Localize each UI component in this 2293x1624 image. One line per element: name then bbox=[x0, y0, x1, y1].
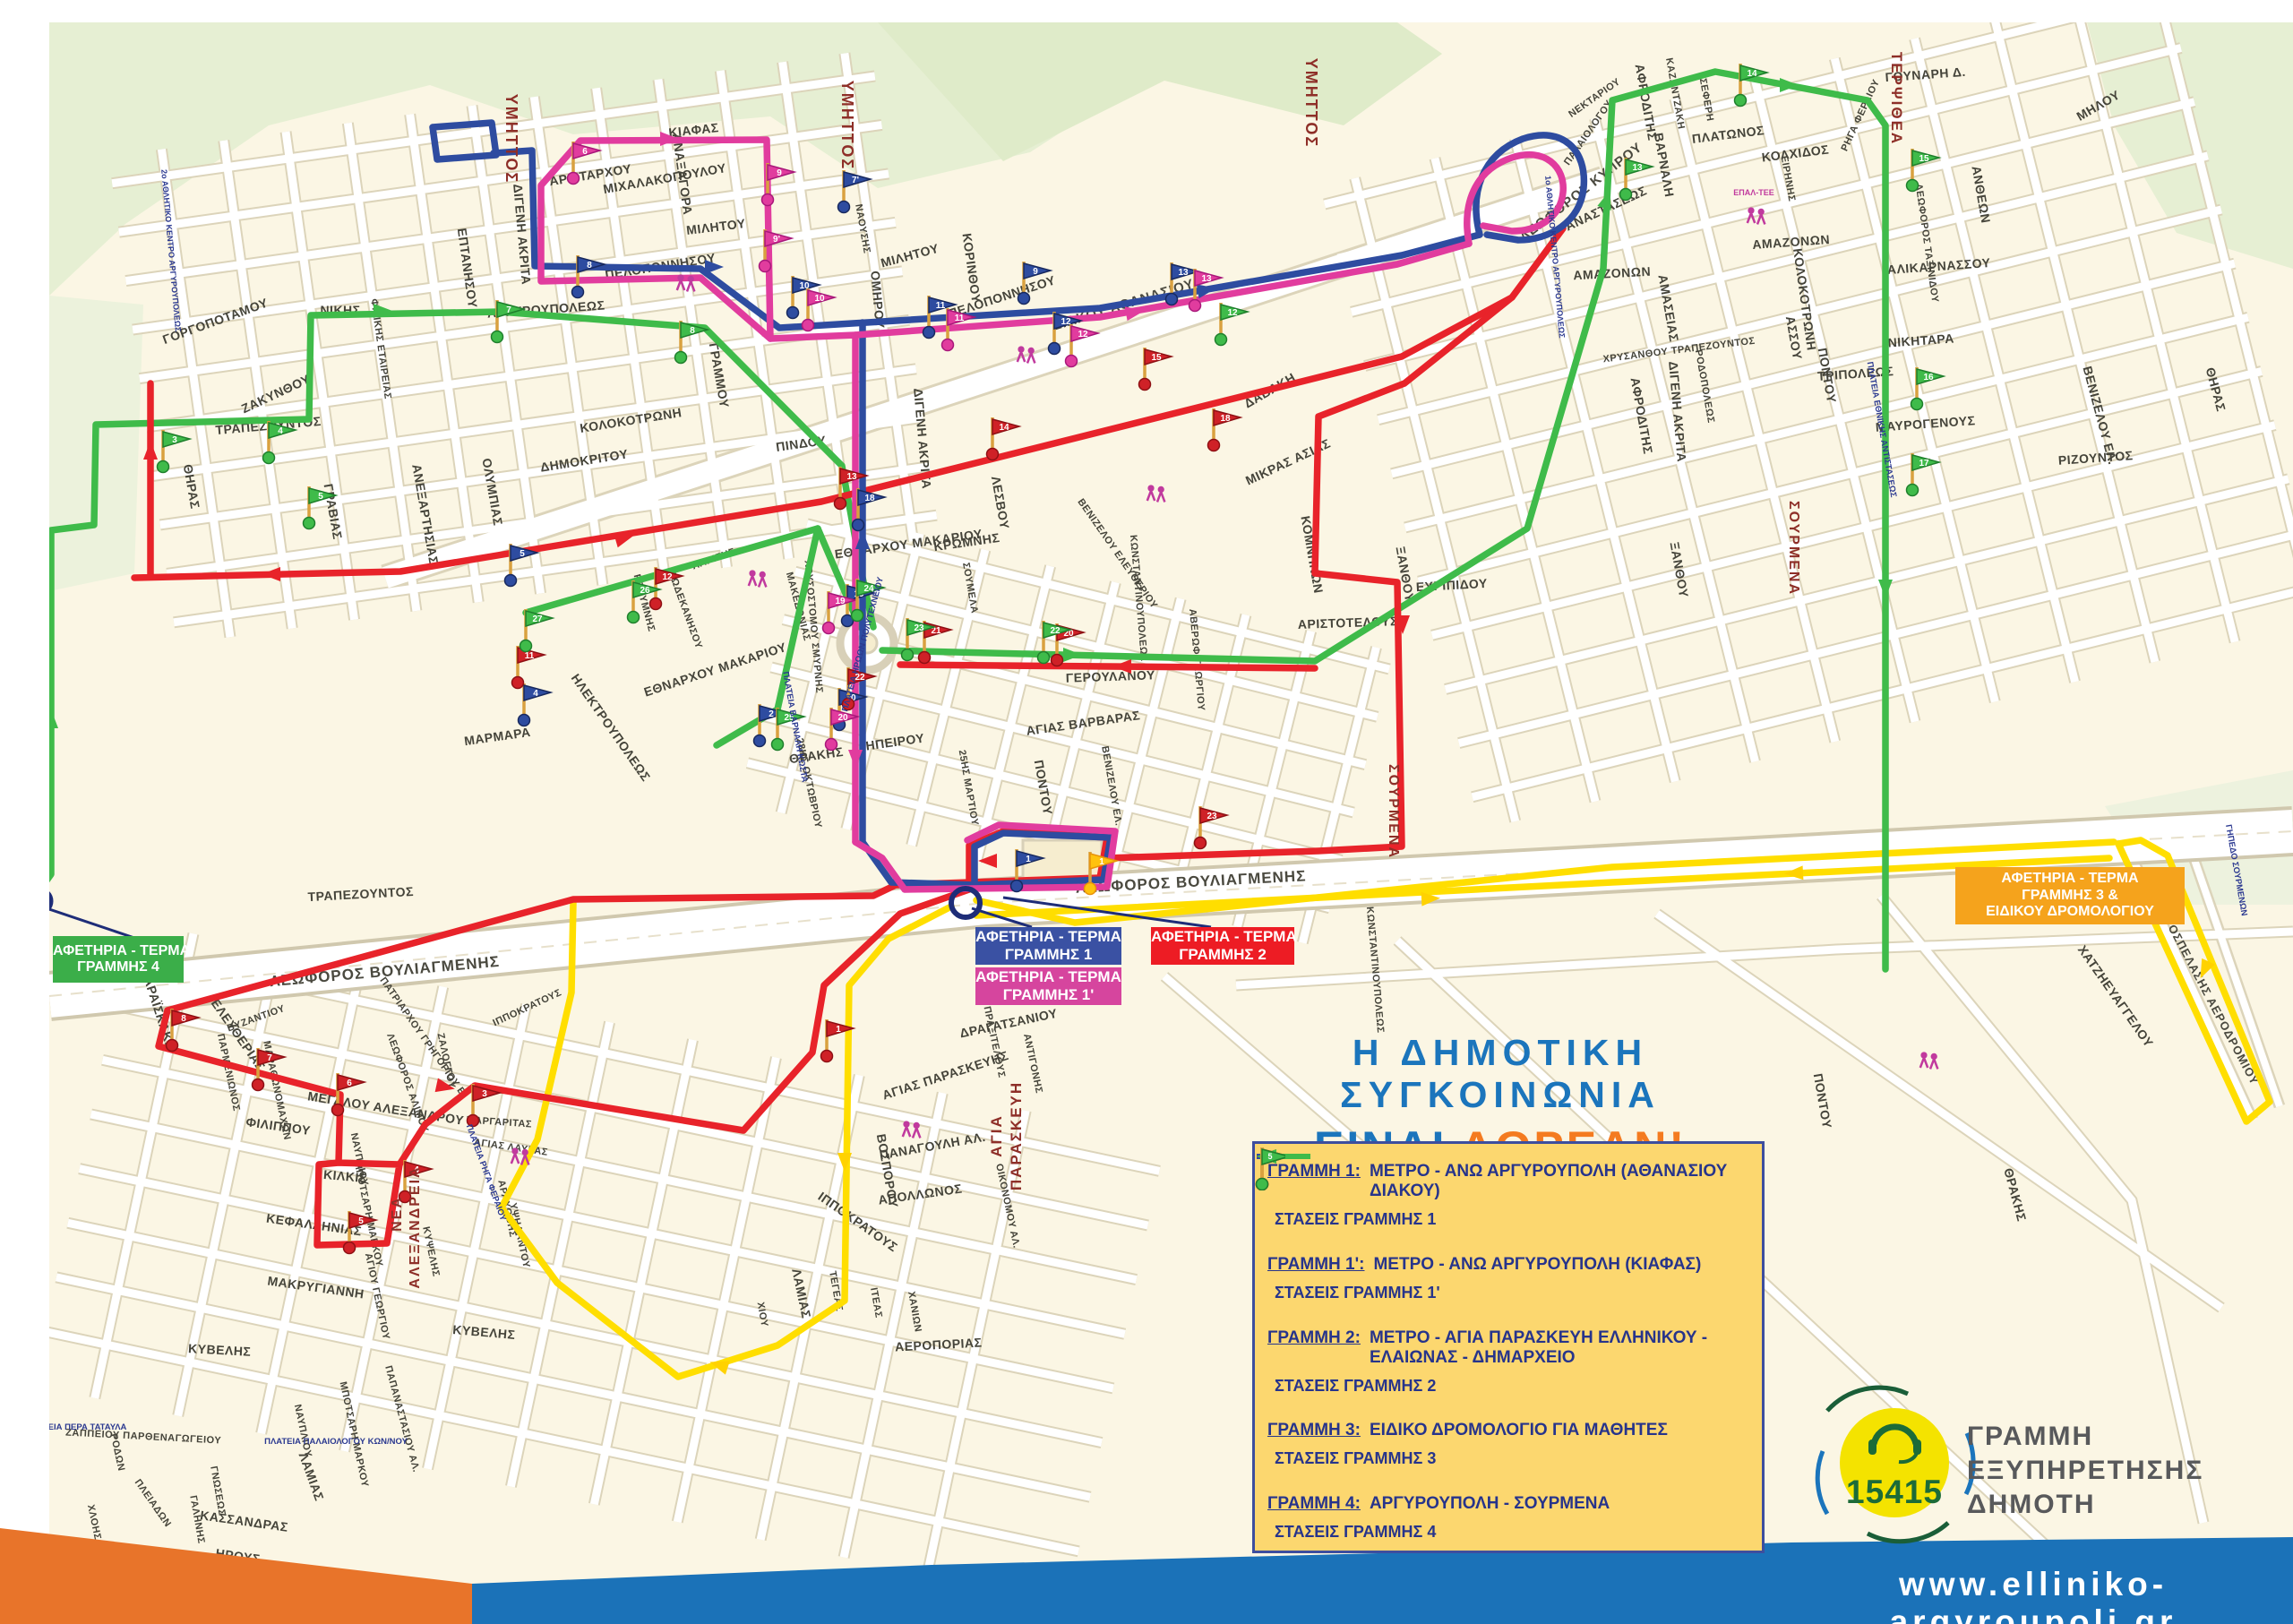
svg-text:5: 5 bbox=[318, 492, 323, 502]
svg-text:19: 19 bbox=[835, 597, 846, 606]
svg-text:26: 26 bbox=[640, 586, 650, 596]
svg-text:8: 8 bbox=[181, 1014, 186, 1024]
terminal-label-line4: ΑΦΕΤΗΡΙΑ - ΤΕΡΜΑ ΓΡΑΜΜΗΣ 4 bbox=[53, 936, 184, 983]
area-label: ΤΕΡΨΙΘΕΑ bbox=[1888, 52, 1905, 145]
svg-text:14: 14 bbox=[1747, 69, 1757, 79]
terminal-text: ΑΦΕΤΗΡΙΑ - ΤΕΡΜΑ bbox=[1955, 871, 2185, 887]
legend-line-desc: ΜΕΤΡΟ - ΑΝΩ ΑΡΓΥΡΟΥΠΟΛΗ (ΑΘΑΝΑΣΙΟΥ ΔΙΑΚΟ… bbox=[1370, 1162, 1746, 1201]
area-label: ΥΜΗΤΤΟΣ bbox=[1302, 58, 1320, 148]
svg-text:4: 4 bbox=[278, 426, 283, 436]
svg-text:9: 9 bbox=[777, 168, 782, 178]
svg-text:23: 23 bbox=[1207, 812, 1217, 821]
svg-text:10: 10 bbox=[814, 294, 825, 304]
legend-line-name: ΓΡΑΜΜΗ 1': bbox=[1267, 1255, 1364, 1275]
terminal-text: ΓΡΑΜΜΗΣ 3 & bbox=[1955, 888, 2185, 904]
city-map: ΜΙΧΑΛΑΚΟΠΟΥΛΟΥ ΠΕΛΟΠΟΝΝΗΣΟΥ ΠΕΛΟΠΟΝΝΗΣΟΥ… bbox=[0, 0, 2293, 1624]
svg-text:12: 12 bbox=[1227, 308, 1238, 318]
legend-stops-label: ΣΤΑΣΕΙΣ ΓΡΑΜΜΗΣ 3 bbox=[1275, 1449, 1436, 1468]
svg-text:27: 27 bbox=[532, 614, 543, 624]
legend-line-name: ΓΡΑΜΜΗ 4: bbox=[1267, 1494, 1361, 1514]
svg-text:23: 23 bbox=[914, 623, 924, 633]
legend-item-line2: ΓΡΑΜΜΗ 2: ΜΕΤΡΟ - ΑΓΙΑ ΠΑΡΑΣΚΕΥΗ ΕΛΛΗΝΙΚ… bbox=[1267, 1328, 1746, 1396]
facility-label: ΕΠΑΛ-ΤΕΕ bbox=[1733, 188, 1774, 197]
svg-text:15: 15 bbox=[1919, 154, 1929, 164]
terminal-text: ΓΡΑΜΜΗΣ 1' bbox=[975, 986, 1121, 1004]
line4-stop-icon: 5 bbox=[1255, 1144, 1285, 1190]
area-label: ΥΜΗΤΤΟΣ bbox=[838, 81, 856, 170]
service-line: ΓΡΑΜΜΗ bbox=[1967, 1420, 2203, 1454]
svg-text:7': 7' bbox=[852, 176, 859, 185]
svg-text:3: 3 bbox=[172, 435, 177, 445]
legend-stops-label: ΣΤΑΣΕΙΣ ΓΡΑΜΜΗΣ 4 bbox=[1275, 1523, 1436, 1542]
svg-text:18: 18 bbox=[1220, 414, 1231, 424]
terminal-label-line2: ΑΦΕΤΗΡΙΑ - ΤΕΡΜΑ ΓΡΑΜΜΗΣ 2 bbox=[1151, 927, 1294, 965]
svg-text:13: 13 bbox=[1178, 268, 1189, 278]
terminal-text: ΓΡΑΜΜΗΣ 1 bbox=[975, 946, 1121, 964]
page-margin-top bbox=[0, 0, 2293, 22]
legend-item-line1p: ΓΡΑΜΜΗ 1': ΜΕΤΡΟ - ΑΝΩ ΑΡΓΥΡΟΥΠΟΛΗ (ΚΙΑΦ… bbox=[1267, 1255, 1746, 1302]
area-label: ΝΕΑ bbox=[390, 1196, 405, 1232]
svg-text:5: 5 bbox=[1267, 1152, 1272, 1161]
hotline-service-label: ΓΡΑΜΜΗ ΕΞΥΠΗΡΕΤΗΣΗΣ ΔΗΜΟΤΗ bbox=[1967, 1420, 2203, 1522]
svg-text:8: 8 bbox=[690, 326, 695, 336]
plaza-label: ΠΛΑΤΕΙΑ ΠΑΛΑΙΟΛΟΓΟΥ ΚΩΝ/ΝΟΥ bbox=[264, 1437, 408, 1447]
svg-text:9': 9' bbox=[773, 235, 780, 245]
legend-stops-label: ΣΤΑΣΕΙΣ ΓΡΑΜΜΗΣ 2 bbox=[1275, 1377, 1436, 1396]
terminal-text: ΓΡΑΜΜΗΣ 2 bbox=[1151, 946, 1294, 964]
transit-map-poster: ΜΙΧΑΛΑΚΟΠΟΥΛΟΥ ΠΕΛΟΠΟΝΝΗΣΟΥ ΠΕΛΟΠΟΝΝΗΣΟΥ… bbox=[0, 0, 2293, 1624]
service-line: ΕΞΥΠΗΡΕΤΗΣΗΣ bbox=[1967, 1454, 2203, 1488]
terminal-text: ΑΦΕΤΗΡΙΑ - ΤΕΡΜΑ bbox=[1151, 928, 1294, 946]
legend-stops-label: ΣΤΑΣΕΙΣ ΓΡΑΜΜΗΣ 1 bbox=[1275, 1210, 1436, 1229]
terminal-label-line1p: ΑΦΕΤΗΡΙΑ - ΤΕΡΜΑ ΓΡΑΜΜΗΣ 1' bbox=[975, 967, 1121, 1005]
terminal-text: ΓΡΑΜΜΗΣ 4 bbox=[53, 959, 184, 975]
terminal-text: ΑΦΕΤΗΡΙΑ - ΤΕΡΜΑ bbox=[975, 968, 1121, 986]
terminal-text: ΑΦΕΤΗΡΙΑ - ΤΕΡΜΑ bbox=[53, 943, 184, 959]
website-url[interactable]: www.elliniko-argyroupoli.gr bbox=[1773, 1566, 2293, 1624]
terminal-label-line3: ΑΦΕΤΗΡΙΑ - ΤΕΡΜΑ ΓΡΑΜΜΗΣ 3 & ΕΙΔΙΚΟΥ ΔΡΟ… bbox=[1955, 867, 2185, 924]
page-margin-left bbox=[0, 0, 49, 1624]
svg-text:7: 7 bbox=[506, 305, 511, 315]
svg-text:12: 12 bbox=[1078, 330, 1088, 339]
legend-item-line3: ΓΡΑΜΜΗ 3: ΕΙΔΙΚΟ ΔΡΟΜΟΛΟΓΙΟ ΓΙΑ ΜΑΘΗΤΕΣ … bbox=[1267, 1421, 1746, 1468]
title-line1: Η ΔΗΜΟΤΙΚΗ ΣΥΓΚΟΙΝΩΝΙΑ bbox=[1227, 1032, 1773, 1116]
svg-text:17: 17 bbox=[1919, 459, 1929, 468]
area-label: ΣΟΥΡΜΕΝΑ bbox=[1386, 764, 1401, 859]
svg-text:4: 4 bbox=[533, 689, 538, 699]
legend-line-name: ΓΡΑΜΜΗ 2: bbox=[1267, 1328, 1361, 1348]
legend-line-desc: ΜΕΤΡΟ - ΑΝΩ ΑΡΓΥΡΟΥΠΟΛΗ (ΚΙΑΦΑΣ) bbox=[1373, 1255, 1701, 1275]
hotline-number: 15415 bbox=[1846, 1474, 1943, 1510]
legend-item-line1: ΓΡΑΜΜΗ 1: ΜΕΤΡΟ - ΑΝΩ ΑΡΓΥΡΟΥΠΟΛΗ (ΑΘΑΝΑ… bbox=[1267, 1162, 1746, 1229]
svg-text:3: 3 bbox=[482, 1089, 487, 1099]
terminal-text: ΕΙΔΙΚΟΥ ΔΡΟΜΟΛΟΓΙΟΥ bbox=[1955, 904, 2185, 920]
svg-text:20: 20 bbox=[837, 713, 848, 723]
service-line: ΔΗΜΟΤΗ bbox=[1967, 1488, 2203, 1522]
legend-line-name: ΓΡΑΜΜΗ 3: bbox=[1267, 1421, 1361, 1440]
area-label: ΠΑΡΑΣΚΕΥΗ bbox=[1008, 1081, 1025, 1190]
svg-text:2: 2 bbox=[769, 709, 774, 719]
svg-text:9: 9 bbox=[1033, 267, 1038, 277]
svg-text:18: 18 bbox=[864, 494, 875, 503]
svg-text:6: 6 bbox=[582, 147, 588, 157]
legend-stops-label: ΣΤΑΣΕΙΣ ΓΡΑΜΜΗΣ 1' bbox=[1275, 1284, 1440, 1302]
legend: ΓΡΑΜΜΗ 1: ΜΕΤΡΟ - ΑΝΩ ΑΡΓΥΡΟΥΠΟΛΗ (ΑΘΑΝΑ… bbox=[1252, 1141, 1765, 1553]
svg-text:5: 5 bbox=[358, 1216, 364, 1226]
svg-text:7: 7 bbox=[267, 1053, 272, 1063]
svg-text:13: 13 bbox=[846, 472, 857, 482]
svg-text:6: 6 bbox=[347, 1078, 352, 1088]
area-label: ΑΓΙΑ bbox=[988, 1114, 1005, 1157]
svg-text:5: 5 bbox=[520, 549, 525, 559]
area-label: ΑΛΕΞΑΝΔΡΕΙΑ bbox=[408, 1165, 423, 1288]
legend-line-desc: ΑΡΓΥΡΟΥΠΟΛΗ - ΣΟΥΡΜΕΝΑ bbox=[1370, 1494, 1610, 1514]
legend-item-line4: ΓΡΑΜΜΗ 4: ΑΡΓΥΡΟΥΠΟΛΗ - ΣΟΥΡΜΕΝΑ 5 ΣΤΑΣΕ… bbox=[1267, 1494, 1746, 1542]
svg-text:12: 12 bbox=[662, 572, 673, 582]
svg-text:15: 15 bbox=[1151, 353, 1162, 363]
svg-text:11: 11 bbox=[936, 301, 946, 311]
svg-text:13: 13 bbox=[1201, 274, 1212, 284]
svg-text:11: 11 bbox=[955, 314, 965, 323]
area-label: ΣΟΥΡΜΕΝΑ bbox=[1786, 501, 1801, 596]
svg-text:22: 22 bbox=[1050, 626, 1061, 636]
svg-text:16: 16 bbox=[1923, 373, 1934, 382]
legend-line-desc: ΜΕΤΡΟ - ΑΓΙΑ ΠΑΡΑΣΚΕΥΗ ΕΛΛΗΝΙΚΟΥ - ΕΛΑΙΩ… bbox=[1370, 1328, 1746, 1368]
svg-text:1: 1 bbox=[836, 1025, 841, 1035]
svg-text:13: 13 bbox=[1632, 163, 1643, 173]
area-label: ΥΜΗΤΤΟΣ bbox=[502, 94, 520, 184]
svg-text:14: 14 bbox=[999, 423, 1009, 433]
terminal-label-line1: ΑΦΕΤΗΡΙΑ - ΤΕΡΜΑ ΓΡΑΜΜΗΣ 1 bbox=[975, 927, 1121, 965]
svg-text:1: 1 bbox=[1026, 855, 1031, 864]
svg-text:1: 1 bbox=[1099, 857, 1104, 867]
svg-text:8: 8 bbox=[587, 261, 592, 271]
svg-text:11: 11 bbox=[525, 651, 535, 661]
terminal-text: ΑΦΕΤΗΡΙΑ - ΤΕΡΜΑ bbox=[975, 928, 1121, 946]
legend-line-desc: ΕΙΔΙΚΟ ΔΡΟΜΟΛΟΓΙΟ ΓΙΑ ΜΑΘΗΤΕΣ bbox=[1370, 1421, 1668, 1440]
